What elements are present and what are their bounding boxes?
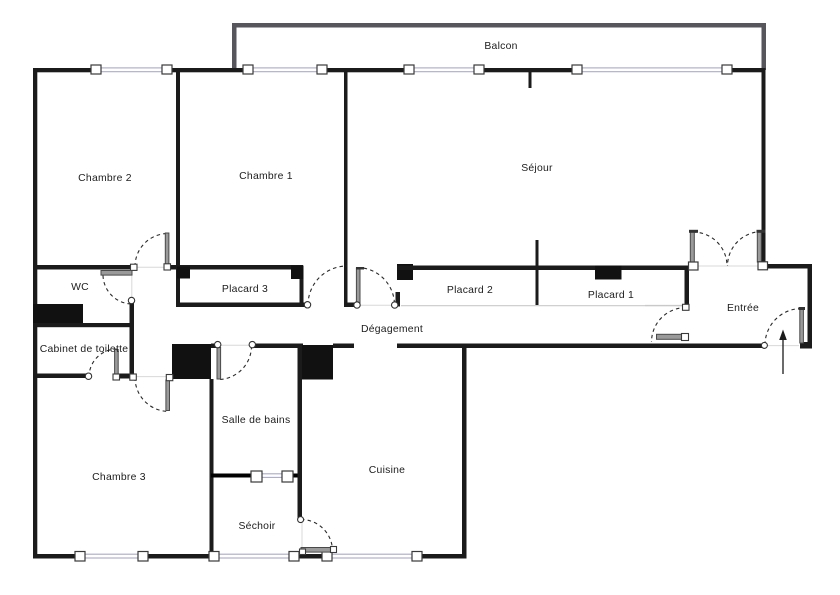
svg-text:Placard 1: Placard 1 [588, 290, 634, 301]
svg-text:Chambre 1: Chambre 1 [239, 171, 293, 182]
svg-text:WC: WC [71, 282, 89, 293]
svg-text:Séjour: Séjour [521, 163, 553, 174]
svg-text:Placard 2: Placard 2 [447, 285, 493, 296]
svg-text:Entrée: Entrée [727, 303, 759, 314]
svg-text:Balcon: Balcon [484, 41, 517, 52]
svg-text:Dégagement: Dégagement [361, 324, 423, 335]
svg-text:Salle de bains: Salle de bains [222, 415, 291, 426]
svg-text:Placard 3: Placard 3 [222, 284, 268, 295]
svg-text:Chambre 3: Chambre 3 [92, 472, 146, 483]
svg-text:Chambre 2: Chambre 2 [78, 173, 132, 184]
svg-text:Cuisine: Cuisine [369, 465, 405, 476]
svg-text:Séchoir: Séchoir [239, 521, 276, 532]
svg-text:Cabinet de toilette: Cabinet de toilette [40, 344, 129, 355]
